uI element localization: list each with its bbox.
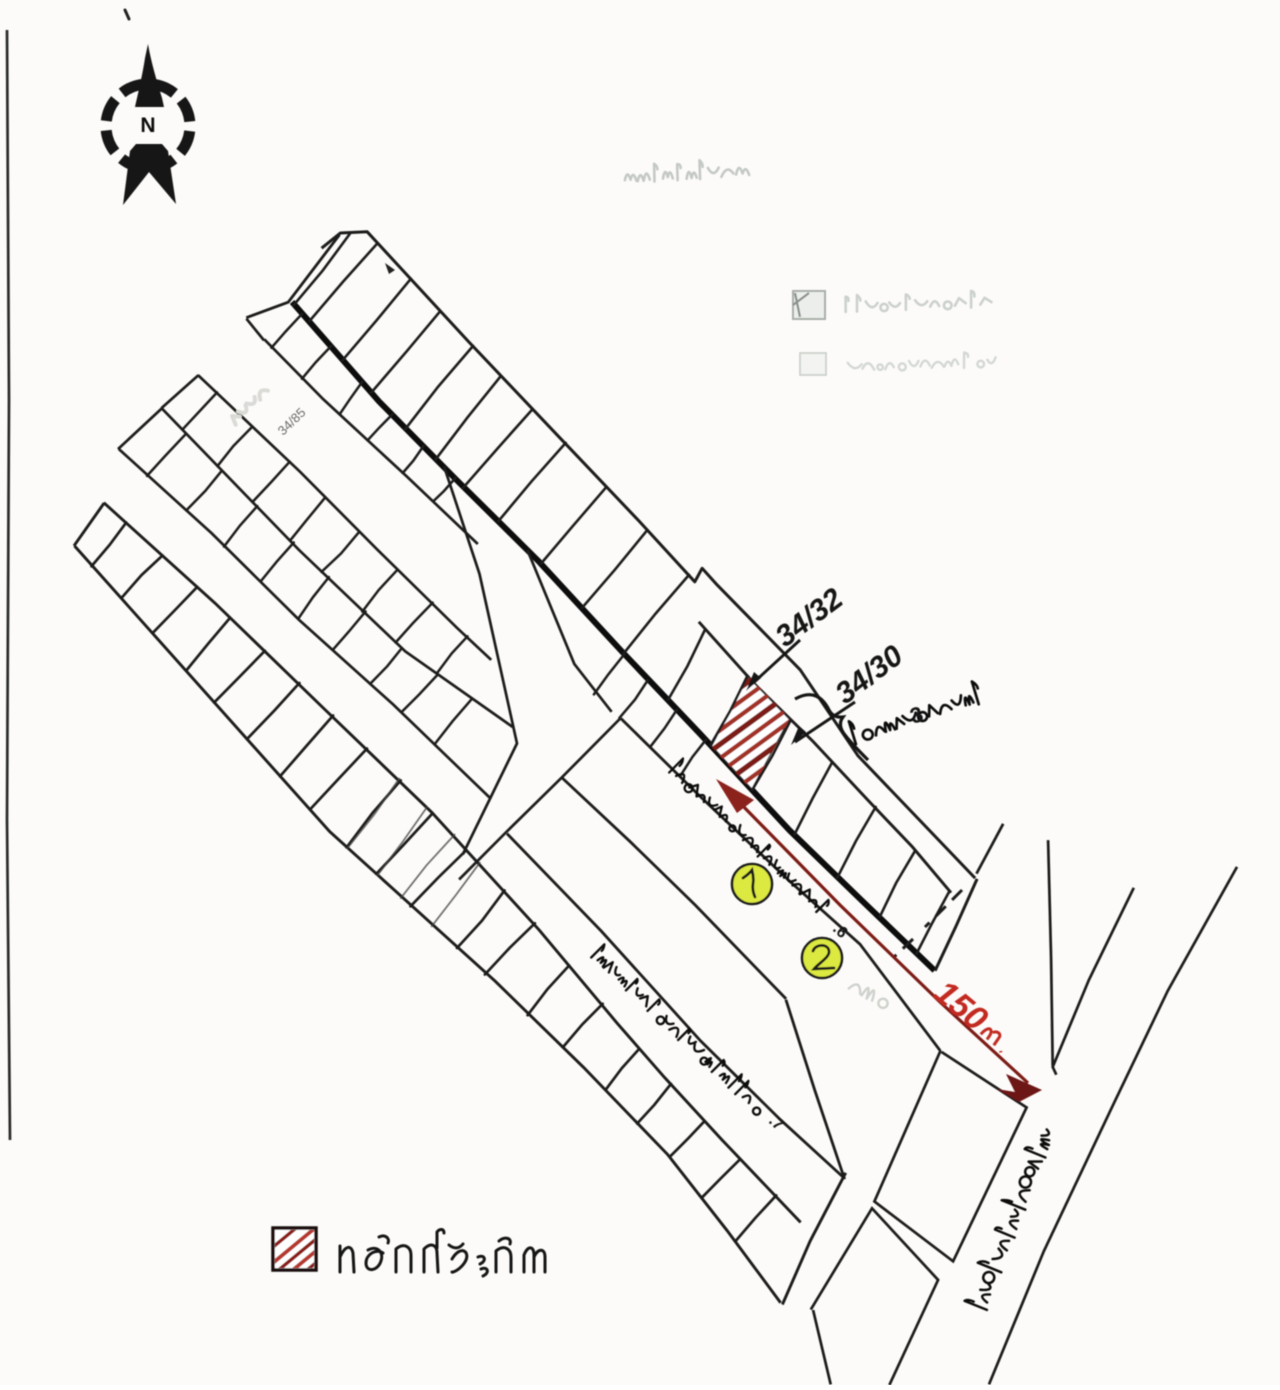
svg-text:N: N bbox=[140, 114, 155, 137]
